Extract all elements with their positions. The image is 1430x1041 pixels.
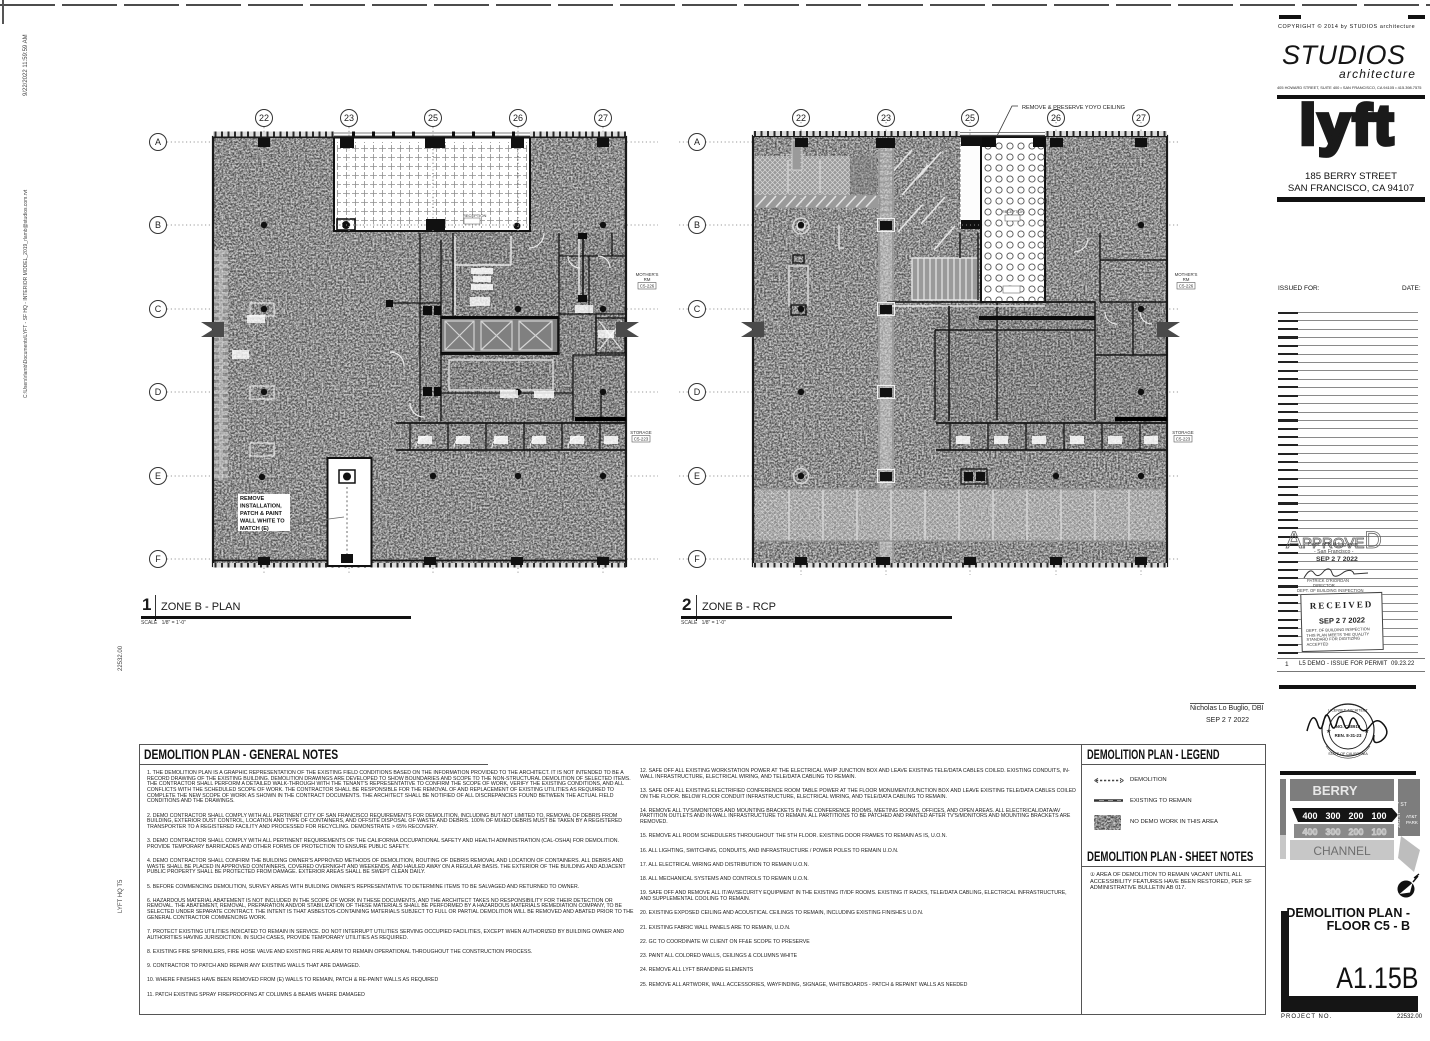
svg-text:22: 22 xyxy=(796,113,806,123)
svg-text:STATE OF CALIFORNIA: STATE OF CALIFORNIA xyxy=(1328,752,1368,756)
svg-text:REMOVE: REMOVE xyxy=(240,496,265,502)
svg-text:C5-226: C5-226 xyxy=(1179,284,1194,289)
svg-text:F: F xyxy=(694,554,700,564)
svg-text:25: 25 xyxy=(428,113,438,123)
svg-text:STORAGE: STORAGE xyxy=(630,430,651,435)
svg-text:INSTALLATION,: INSTALLATION, xyxy=(240,504,282,510)
svg-text:C5-223: C5-223 xyxy=(634,437,649,442)
svg-text:RM: RM xyxy=(644,277,651,282)
svg-text:CHANNEL: CHANNEL xyxy=(1313,844,1371,858)
svg-text:RECEPTION: RECEPTION xyxy=(1002,210,1024,214)
svg-text:D: D xyxy=(694,387,701,397)
svg-text:WALL WHITE TO: WALL WHITE TO xyxy=(240,519,285,525)
svg-text:27: 27 xyxy=(1136,113,1146,123)
svg-text:★: ★ xyxy=(1326,728,1331,735)
svg-text:400: 400 xyxy=(1302,827,1317,837)
svg-text:25: 25 xyxy=(965,113,975,123)
svg-text:BERRY ST: BERRY ST xyxy=(1382,802,1407,808)
svg-text:26: 26 xyxy=(1051,113,1061,123)
svg-text:200: 200 xyxy=(1348,827,1363,837)
svg-text:200: 200 xyxy=(1348,811,1363,821)
svg-text:A: A xyxy=(694,137,700,147)
svg-text:PATCH & PAINT: PATCH & PAINT xyxy=(240,511,283,517)
svg-text:C: C xyxy=(694,304,701,314)
svg-text:LICENSED ARCHITECT: LICENSED ARCHITECT xyxy=(1328,709,1368,713)
svg-text:B: B xyxy=(155,220,161,230)
svg-text:STORAGE: STORAGE xyxy=(1172,430,1193,435)
svg-text:23: 23 xyxy=(344,113,354,123)
svg-text:A: A xyxy=(155,137,161,147)
svg-text:22: 22 xyxy=(259,113,269,123)
svg-text:REMOVE & PRESERVE YOYO CEILING: REMOVE & PRESERVE YOYO CEILING xyxy=(1022,105,1125,111)
svg-text:RECEPTION: RECEPTION xyxy=(463,213,486,218)
svg-text:C5-223: C5-223 xyxy=(1176,437,1191,442)
svg-text:B: B xyxy=(694,220,700,230)
svg-text:MATCH (E): MATCH (E) xyxy=(240,526,269,532)
svg-text:4TH ST: 4TH ST xyxy=(1288,814,1293,830)
svg-text:300: 300 xyxy=(1325,827,1340,837)
svg-text:400: 400 xyxy=(1302,811,1317,821)
svg-text:REN. 8-31-23: REN. 8-31-23 xyxy=(1335,733,1362,738)
svg-text:C: C xyxy=(155,304,162,314)
svg-text:27: 27 xyxy=(598,113,608,123)
svg-text:26: 26 xyxy=(513,113,523,123)
svg-text:E: E xyxy=(694,471,700,481)
svg-text:C5-226: C5-226 xyxy=(640,284,655,289)
svg-text:3RD ST: 3RD ST xyxy=(1396,812,1401,828)
svg-text:F: F xyxy=(155,554,161,564)
svg-text:RM: RM xyxy=(1183,277,1190,282)
svg-text:300: 300 xyxy=(1325,811,1340,821)
svg-text:BERRY: BERRY xyxy=(1312,783,1357,798)
svg-text:PARK: PARK xyxy=(1406,820,1418,825)
svg-text:100: 100 xyxy=(1371,811,1386,821)
svg-text:23: 23 xyxy=(881,113,891,123)
svg-text:AT&T: AT&T xyxy=(1406,814,1417,819)
svg-text:E: E xyxy=(155,471,161,481)
svg-text:D: D xyxy=(155,387,162,397)
svg-text:100: 100 xyxy=(1371,827,1386,837)
